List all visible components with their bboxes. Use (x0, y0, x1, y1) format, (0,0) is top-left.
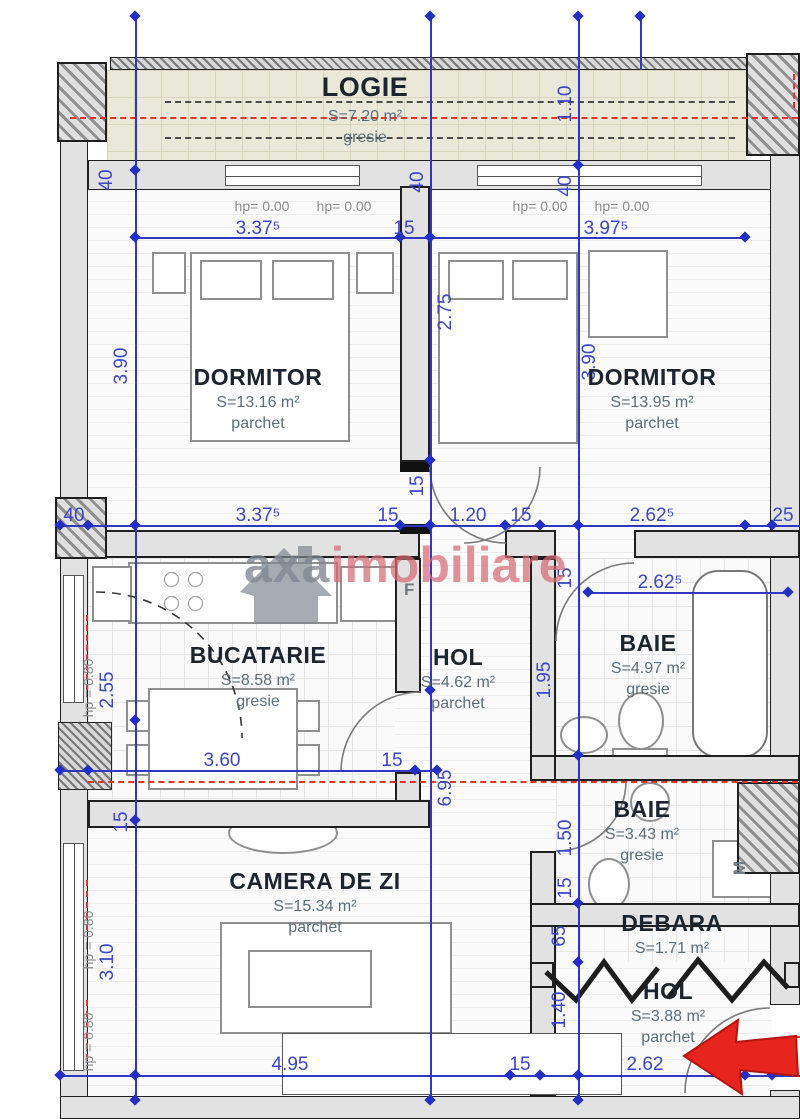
room-area: S=4.97 m² (611, 658, 685, 679)
dim-label: 15 (555, 567, 577, 588)
floor-plan: F M 3. (0, 0, 800, 1119)
window-height-label: hp = 0.80 (80, 659, 96, 718)
window-height-label: hp= 0.00 (595, 198, 650, 214)
dim-line (135, 237, 745, 239)
dim-label: 3.60 (204, 750, 241, 772)
room-area: S=8.58 m² (190, 670, 327, 691)
room-area: S=13.16 m² (194, 392, 323, 413)
room-floor: parchet (588, 413, 717, 434)
dim-label: 65 (549, 925, 571, 946)
window-height-label: hp = 0.80 (80, 911, 96, 970)
room-label-baie-2: BAIE S=3.43 m² gresie (605, 794, 679, 867)
room-label-bucatarie: BUCATARIE S=8.58 m² gresie (190, 640, 327, 713)
dim-label: 15 (407, 475, 429, 496)
axis-line (430, 15, 432, 1100)
dim-label: 2.62⁵ (638, 572, 683, 594)
axis-line (640, 15, 642, 70)
room-floor: gresie (322, 127, 409, 148)
dim-label: 1.50 (555, 820, 577, 857)
dim-label: 15 (381, 750, 402, 772)
dim-label: 15 (111, 811, 133, 832)
room-area: S=3.43 m² (605, 824, 679, 845)
room-area: S=4.62 m² (421, 672, 495, 693)
dim-label: 1.10 (555, 86, 577, 123)
room-name: DEBARA (621, 908, 722, 938)
room-name: HOL (421, 642, 495, 672)
room-name: LOGIE (322, 70, 409, 106)
room-area: S=3.88 m² (631, 1006, 705, 1027)
room-label-debara: DEBARA S=1.71 m² (621, 908, 722, 959)
dim-label: 15 (509, 1054, 530, 1076)
dim-label: 15 (393, 218, 414, 240)
room-area: S=7.20 m² (322, 106, 409, 127)
dim-label: 2.75 (435, 294, 457, 331)
dim-label: 25 (772, 505, 793, 527)
dim-label: 2.62⁵ (630, 505, 675, 527)
dim-label: 1.95 (534, 662, 556, 699)
room-area: S=13.95 m² (588, 392, 717, 413)
room-floor: parchet (194, 413, 323, 434)
room-floor: gresie (605, 845, 679, 866)
room-floor: parchet (229, 917, 400, 938)
dim-label: 3.37⁵ (236, 505, 281, 527)
room-floor: gresie (611, 679, 685, 700)
dim-label: 25 (777, 1054, 798, 1076)
window-height-label: hp= 0.00 (513, 198, 568, 214)
centerline (70, 117, 798, 119)
dim-line (60, 1075, 800, 1077)
dim-label: 3.90 (111, 348, 133, 385)
room-label-baie-1: BAIE S=4.97 m² gresie (611, 628, 685, 701)
room-label-camera-de-zi: CAMERA DE ZI S=15.34 m² parchet (229, 866, 400, 939)
room-area: S=1.71 m² (621, 938, 722, 959)
dim-label: 3.37⁵ (236, 218, 281, 240)
centerline (786, 1036, 800, 1038)
axis-line (135, 15, 137, 1100)
dim-label: 1.20 (450, 505, 487, 527)
axis-line (578, 15, 580, 1100)
room-name: DORMITOR (588, 362, 717, 392)
room-label-logie: LOGIE S=7.20 m² gresie (322, 70, 409, 148)
room-floor: parchet (421, 693, 495, 714)
room-floor: gresie (190, 691, 327, 712)
room-label-hol-2: HOL S=3.88 m² parchet (631, 976, 705, 1049)
dim-label: 40 (407, 171, 429, 192)
dim-label: 1.40 (549, 992, 571, 1029)
room-area: S=15.34 m² (229, 896, 400, 917)
dim-label: 6.95 (435, 770, 457, 807)
dim-label: 3.10 (97, 944, 119, 981)
dim-label: 15 (510, 505, 531, 527)
room-name: HOL (631, 976, 705, 1006)
room-floor: parchet (631, 1027, 705, 1048)
window-height-label: hp= 0.00 (235, 198, 290, 214)
dim-label: 2.62 (627, 1054, 664, 1076)
dim-label: 40 (96, 169, 118, 190)
room-label-hol: HOL S=4.62 m² parchet (421, 642, 495, 715)
dim-label: 4.95 (272, 1054, 309, 1076)
dim-label: 3.97⁵ (584, 218, 629, 240)
room-label-dormitor-1: DORMITOR S=13.16 m² parchet (194, 362, 323, 435)
window-height-label: hp= 0.00 (317, 198, 372, 214)
dim-label: 2.55 (97, 672, 119, 709)
room-name: DORMITOR (194, 362, 323, 392)
room-name: BAIE (611, 628, 685, 658)
room-label-dormitor-2: DORMITOR S=13.95 m² parchet (588, 362, 717, 435)
dim-label: 40 (555, 175, 577, 196)
dim-label: 15 (555, 877, 577, 898)
dim-label: 40 (63, 505, 84, 527)
centerline (793, 74, 795, 108)
dim-line (585, 592, 790, 594)
room-name: BUCATARIE (190, 640, 327, 670)
window-height-label: hp = 0.80 (80, 1013, 96, 1072)
room-name: CAMERA DE ZI (229, 866, 400, 896)
room-name: BAIE (605, 794, 679, 824)
dim-label: 15 (377, 505, 398, 527)
